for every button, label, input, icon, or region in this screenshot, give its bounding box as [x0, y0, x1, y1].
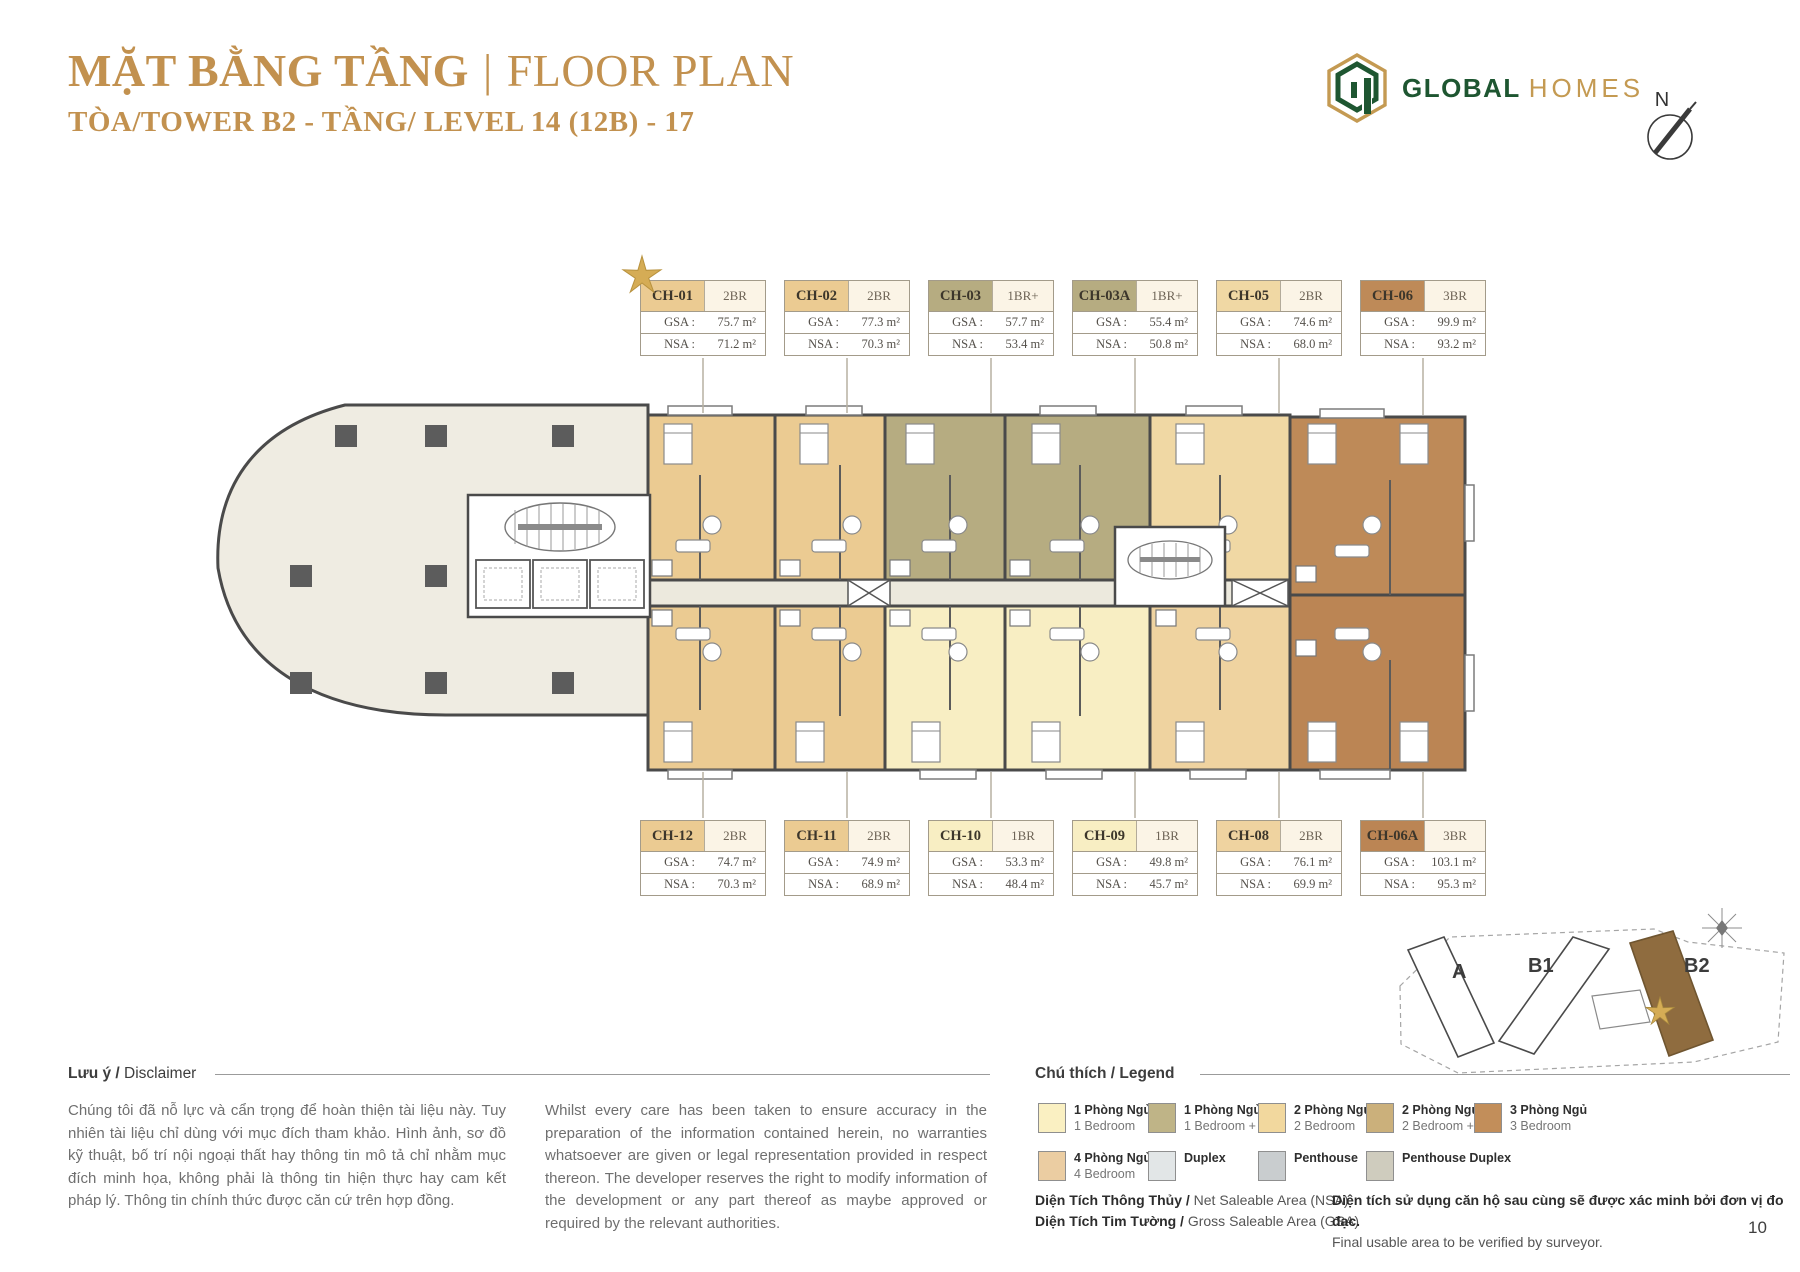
area-value: 50.8 m² — [1127, 337, 1197, 352]
area-value: 49.8 m² — [1127, 855, 1197, 870]
disclaimer-heading-en: Disclaimer — [120, 1065, 197, 1082]
unit-card-ch-10: CH-101BRGSA :53.3 m²NSA :48.4 m² — [928, 820, 1054, 896]
unit-card-ch-05: CH-052BRGSA :74.6 m²NSA :68.0 m² — [1216, 280, 1342, 356]
gsa-definition: Diện Tích Tim Tường / Gross Saleable Are… — [1035, 1211, 1359, 1232]
unit-gsa-row: GSA :74.7 m² — [640, 852, 766, 874]
legend-labels: 3 Phòng Ngủ3 Bedroom — [1510, 1102, 1587, 1134]
legend-swatch — [1366, 1151, 1394, 1181]
north-compass: N — [1648, 89, 1696, 159]
unit-type-label: 3BR — [1425, 821, 1485, 851]
legend-label-vn: Duplex — [1184, 1150, 1226, 1166]
amenity-footprint — [1592, 990, 1650, 1029]
unit-card-ch-09: CH-091BRGSA :49.8 m²NSA :45.7 m² — [1072, 820, 1198, 896]
unit-card-ch-08: CH-082BRGSA :76.1 m²NSA :69.9 m² — [1216, 820, 1342, 896]
disclaimer-text-en: Whilst every care has been taken to ensu… — [545, 1100, 987, 1235]
title-english: FLOOR PLAN — [507, 45, 794, 96]
legend-labels: 4 Phòng Ngủ4 Bedroom — [1074, 1150, 1151, 1182]
area-value: 53.3 m² — [983, 855, 1053, 870]
unit-card-header: CH-112BR — [784, 820, 910, 852]
floor-plan-page: A B1 B2 N MẶT BẰNG TẦNG|FLOOR PLAN TÒA/T… — [0, 0, 1800, 1272]
area-label: GSA : — [641, 315, 695, 330]
disclaimer-heading-vn: Lưu ý / — [68, 1065, 120, 1082]
keyplan-compass-rose-icon — [1702, 908, 1742, 948]
legend-swatch — [1366, 1103, 1394, 1133]
tower-a-label: A — [1452, 961, 1466, 983]
legend-swatch — [1148, 1103, 1176, 1133]
plan-unit-ch-03 — [885, 415, 1005, 580]
unit-card-ch-03: CH-031BR+GSA :57.7 m²NSA :53.4 m² — [928, 280, 1054, 356]
legend-swatch — [1038, 1151, 1066, 1181]
area-label: NSA : — [929, 877, 983, 892]
featured-star-icon — [620, 254, 664, 298]
unit-id-label: CH-08 — [1217, 821, 1281, 851]
tower-a-footprint — [1408, 937, 1494, 1057]
area-value: 53.4 m² — [983, 337, 1053, 352]
legend-label-vn: Penthouse Duplex — [1402, 1150, 1511, 1166]
unit-nsa-row: NSA :48.4 m² — [928, 874, 1054, 896]
unit-id-label: CH-05 — [1217, 281, 1281, 311]
unit-id-label: CH-11 — [785, 821, 849, 851]
area-label: GSA : — [785, 855, 839, 870]
area-label: GSA : — [1073, 315, 1127, 330]
unit-card-header: CH-091BR — [1072, 820, 1198, 852]
unit-card-header: CH-03A1BR+ — [1072, 280, 1198, 312]
unit-gsa-row: GSA :99.9 m² — [1360, 312, 1486, 334]
unit-card-header: CH-101BR — [928, 820, 1054, 852]
unit-card-ch-02: CH-022BRGSA :77.3 m²NSA :70.3 m² — [784, 280, 910, 356]
unit-card-header: CH-063BR — [1360, 280, 1486, 312]
star-icon — [620, 254, 664, 298]
area-value: 93.2 m² — [1415, 337, 1485, 352]
unit-type-label: 1BR+ — [1137, 281, 1197, 311]
area-value: 68.0 m² — [1271, 337, 1341, 352]
core-stairs-elevators — [468, 495, 650, 617]
unit-gsa-row: GSA :76.1 m² — [1216, 852, 1342, 874]
tower-b1-label: B1 — [1528, 955, 1554, 977]
unit-type-label: 2BR — [849, 281, 909, 311]
area-value: 68.9 m² — [839, 877, 909, 892]
unit-type-label: 3BR — [1425, 281, 1485, 311]
unit-card-ch-03a: CH-03A1BR+GSA :55.4 m²NSA :50.8 m² — [1072, 280, 1198, 356]
unit-id-label: CH-06 — [1361, 281, 1425, 311]
secondary-stair-core — [1115, 527, 1225, 606]
unit-nsa-row: NSA :71.2 m² — [640, 334, 766, 356]
unit-id-label: CH-03A — [1073, 281, 1137, 311]
compass-north-label: N — [1655, 89, 1669, 111]
unit-nsa-row: NSA :53.4 m² — [928, 334, 1054, 356]
unit-type-label: 2BR — [1281, 821, 1341, 851]
unit-type-label: 1BR — [1137, 821, 1197, 851]
page-subtitle: TÒA/TOWER B2 - TẦNG/ LEVEL 14 (12B) - 17 — [68, 106, 694, 139]
brand-name-primary: GLOBAL — [1402, 73, 1521, 103]
unit-card-header: CH-082BR — [1216, 820, 1342, 852]
legend-swatch — [1258, 1151, 1286, 1181]
legend-rule — [1200, 1074, 1790, 1075]
legend-labels: Duplex — [1184, 1150, 1226, 1166]
surveyor-note-vn: Diện tích sử dụng căn hộ sau cùng sẽ đượ… — [1332, 1190, 1800, 1232]
disclaimer-heading: Lưu ý / Disclaimer — [68, 1065, 196, 1083]
tower-b2-label: B2 — [1684, 955, 1710, 977]
area-value: 55.4 m² — [1127, 315, 1197, 330]
nsa-definition: Diện Tích Thông Thủy / Net Saleable Area… — [1035, 1190, 1359, 1211]
floor-plan-graphic: A B1 B2 N — [0, 0, 1800, 1272]
area-value: 76.1 m² — [1271, 855, 1341, 870]
area-value: 74.7 m² — [695, 855, 765, 870]
unit-gsa-row: GSA :77.3 m² — [784, 312, 910, 334]
area-value: 95.3 m² — [1415, 877, 1485, 892]
unit-nsa-row: NSA :70.3 m² — [784, 334, 910, 356]
legend-label-en: 1 Bedroom — [1074, 1118, 1151, 1134]
area-value: 45.7 m² — [1127, 877, 1197, 892]
title-vietnamese: MẶT BẰNG TẦNG — [68, 45, 469, 96]
area-label: NSA : — [1217, 337, 1271, 352]
legend-swatch — [1148, 1151, 1176, 1181]
area-value: 70.3 m² — [695, 877, 765, 892]
area-label: NSA : — [929, 337, 983, 352]
area-label: NSA : — [785, 337, 839, 352]
unit-nsa-row: NSA :68.9 m² — [784, 874, 910, 896]
area-label: GSA : — [1361, 315, 1415, 330]
unit-id-label: CH-10 — [929, 821, 993, 851]
legend-heading: Chú thích / Legend — [1035, 1065, 1175, 1083]
unit-id-label: CH-09 — [1073, 821, 1137, 851]
unit-cards-top-row: CH-012BRGSA :75.7 m²NSA :71.2 m²CH-022BR… — [640, 280, 1486, 356]
unit-card-ch-12: CH-122BRGSA :74.7 m²NSA :70.3 m² — [640, 820, 766, 896]
area-label: NSA : — [1217, 877, 1271, 892]
legend-swatch — [1474, 1103, 1502, 1133]
area-label: GSA : — [785, 315, 839, 330]
unit-type-label: 1BR+ — [993, 281, 1053, 311]
legend-labels: Penthouse Duplex — [1402, 1150, 1511, 1166]
area-label: GSA : — [1217, 855, 1271, 870]
area-label: NSA : — [1073, 337, 1127, 352]
legend-labels: Penthouse — [1294, 1150, 1358, 1166]
unit-card-header: CH-022BR — [784, 280, 910, 312]
brand-name-secondary: HOMES — [1529, 73, 1644, 103]
unit-id-label: CH-02 — [785, 281, 849, 311]
unit-card-ch-11: CH-112BRGSA :74.9 m²NSA :68.9 m² — [784, 820, 910, 896]
unit-gsa-row: GSA :103.1 m² — [1360, 852, 1486, 874]
unit-gsa-row: GSA :55.4 m² — [1072, 312, 1198, 334]
area-label: GSA : — [1217, 315, 1271, 330]
area-label: GSA : — [1073, 855, 1127, 870]
legend-heading-en: Legend — [1115, 1065, 1174, 1082]
unit-nsa-row: NSA :50.8 m² — [1072, 334, 1198, 356]
legend-label-vn: 4 Phòng Ngủ — [1074, 1150, 1151, 1166]
area-label: GSA : — [641, 855, 695, 870]
area-value: 48.4 m² — [983, 877, 1053, 892]
tower-b2-footprint-highlighted — [1630, 931, 1713, 1056]
unit-gsa-row: GSA :74.6 m² — [1216, 312, 1342, 334]
plan-unit-ch-02 — [775, 415, 885, 580]
legend-swatch — [1038, 1103, 1066, 1133]
area-value: 69.9 m² — [1271, 877, 1341, 892]
brand-hexagon-icon — [1326, 52, 1388, 124]
legend-labels: 2 Phòng Ngủ2 Bedroom — [1294, 1102, 1371, 1134]
unit-nsa-row: NSA :93.2 m² — [1360, 334, 1486, 356]
unit-type-label: 2BR — [705, 821, 765, 851]
legend-label-en: 2 Bedroom — [1294, 1118, 1371, 1134]
area-value: 75.7 m² — [695, 315, 765, 330]
area-value: 99.9 m² — [1415, 315, 1485, 330]
unit-nsa-row: NSA :68.0 m² — [1216, 334, 1342, 356]
legend-label-vn: 3 Phòng Ngủ — [1510, 1102, 1587, 1118]
brand-logo: GLOBALHOMES — [1326, 52, 1644, 124]
unit-type-label: 2BR — [705, 281, 765, 311]
surveyor-note: Diện tích sử dụng căn hộ sau cùng sẽ đượ… — [1332, 1190, 1800, 1253]
unit-nsa-row: NSA :45.7 m² — [1072, 874, 1198, 896]
unit-nsa-row: NSA :69.9 m² — [1216, 874, 1342, 896]
area-label: GSA : — [929, 315, 983, 330]
legend-swatch — [1258, 1103, 1286, 1133]
page-number: 10 — [1748, 1218, 1767, 1238]
area-definitions: Diện Tích Thông Thủy / Net Saleable Area… — [1035, 1190, 1359, 1232]
unit-nsa-row: NSA :70.3 m² — [640, 874, 766, 896]
area-label: GSA : — [1361, 855, 1415, 870]
area-label: NSA : — [785, 877, 839, 892]
area-value: 74.9 m² — [839, 855, 909, 870]
area-label: NSA : — [1073, 877, 1127, 892]
disclaimer-text-vn: Chúng tôi đã nỗ lực và cẩn trọng để hoàn… — [68, 1100, 506, 1213]
unit-id-label: CH-12 — [641, 821, 705, 851]
area-value: 74.6 m² — [1271, 315, 1341, 330]
unit-type-label: 2BR — [1281, 281, 1341, 311]
area-label: NSA : — [1361, 877, 1415, 892]
legend-labels: 1 Phòng Ngủ1 Bedroom — [1074, 1102, 1151, 1134]
area-value: 57.7 m² — [983, 315, 1053, 330]
unit-card-ch-06: CH-063BRGSA :99.9 m²NSA :93.2 m² — [1360, 280, 1486, 356]
area-label: NSA : — [641, 877, 695, 892]
area-value: 77.3 m² — [839, 315, 909, 330]
unit-id-label: CH-06A — [1361, 821, 1425, 851]
legend-label-vn: Penthouse — [1294, 1150, 1358, 1166]
unit-card-header: CH-06A3BR — [1360, 820, 1486, 852]
unit-id-label: CH-03 — [929, 281, 993, 311]
unit-gsa-row: GSA :57.7 m² — [928, 312, 1054, 334]
unit-gsa-row: GSA :75.7 m² — [640, 312, 766, 334]
unit-card-header: CH-052BR — [1216, 280, 1342, 312]
page-title: MẶT BẰNG TẦNG|FLOOR PLAN — [68, 44, 794, 97]
unit-gsa-row: GSA :74.9 m² — [784, 852, 910, 874]
area-label: NSA : — [1361, 337, 1415, 352]
unit-type-label: 1BR — [993, 821, 1053, 851]
unit-nsa-row: NSA :95.3 m² — [1360, 874, 1486, 896]
surveyor-note-en: Final usable area to be verified by surv… — [1332, 1232, 1800, 1253]
keyplan: A B1 B2 — [1400, 908, 1784, 1073]
unit-type-label: 2BR — [849, 821, 909, 851]
area-value: 103.1 m² — [1415, 855, 1485, 870]
unit-card-ch-01: CH-012BRGSA :75.7 m²NSA :71.2 m² — [640, 280, 766, 356]
area-value: 70.3 m² — [839, 337, 909, 352]
area-label: GSA : — [929, 855, 983, 870]
disclaimer-rule — [215, 1074, 990, 1075]
legend-label-en: 4 Bedroom — [1074, 1166, 1151, 1182]
unit-gsa-row: GSA :49.8 m² — [1072, 852, 1198, 874]
unit-gsa-row: GSA :53.3 m² — [928, 852, 1054, 874]
area-label: NSA : — [641, 337, 695, 352]
title-divider: | — [483, 45, 493, 96]
legend-label-vn: 1 Phòng Ngủ — [1074, 1102, 1151, 1118]
unit-card-header: CH-031BR+ — [928, 280, 1054, 312]
unit-card-header: CH-122BR — [640, 820, 766, 852]
unit-card-ch-06a: CH-06A3BRGSA :103.1 m²NSA :95.3 m² — [1360, 820, 1486, 896]
area-value: 71.2 m² — [695, 337, 765, 352]
legend-heading-vn: Chú thích / — [1035, 1065, 1115, 1082]
unit-cards-bottom-row: CH-122BRGSA :74.7 m²NSA :70.3 m²CH-112BR… — [640, 820, 1486, 896]
legend-label-en: 3 Bedroom — [1510, 1118, 1587, 1134]
legend-label-vn: 2 Phòng Ngủ — [1294, 1102, 1371, 1118]
